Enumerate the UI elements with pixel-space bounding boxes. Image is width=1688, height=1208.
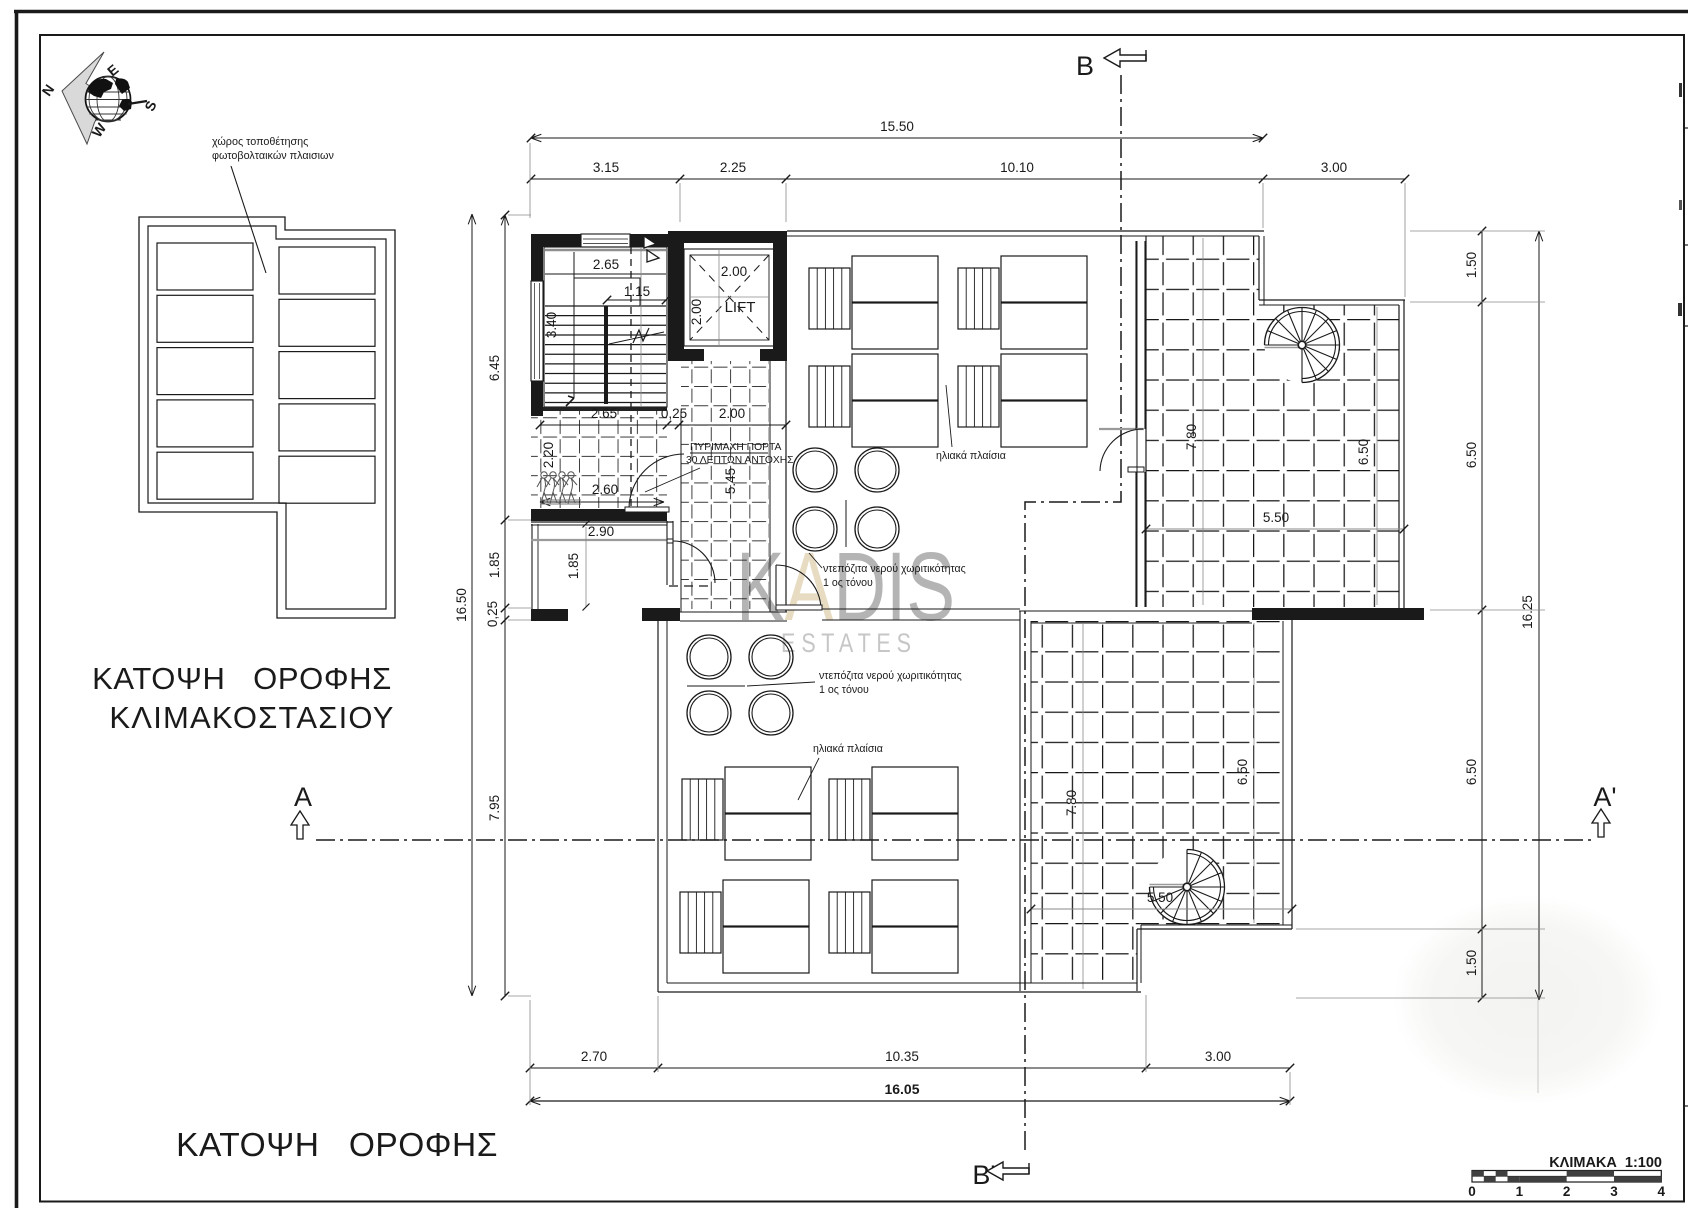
svg-text:ΚΑΤΟΨΗ ΟΡΟΦΗΣ: ΚΑΤΟΨΗ ΟΡΟΦΗΣ [176,1127,498,1164]
svg-text:2.25: 2.25 [720,160,746,175]
svg-text:φωτοβολταικών πλαισιων: φωτοβολταικών πλαισιων [212,150,334,162]
svg-text:A': A' [1593,782,1616,812]
svg-text:6.50: 6.50 [1356,439,1371,465]
svg-text:6.50: 6.50 [1464,759,1479,785]
svg-text:16.05: 16.05 [884,1081,919,1097]
svg-text:ΚΑΤΟΨΗ ΟΡΟΦΗΣ: ΚΑΤΟΨΗ ΟΡΟΦΗΣ [92,661,392,696]
svg-text:ΚΛΙΜΑΚΟΣΤΑΣΙΟΥ: ΚΛΙΜΑΚΟΣΤΑΣΙΟΥ [109,700,394,735]
svg-text:A: A [294,782,312,812]
svg-text:ηλιακά πλαίσια: ηλιακά πλαίσια [936,450,1006,462]
svg-text:16.25: 16.25 [1520,595,1535,629]
svg-text:2: 2 [1563,1184,1571,1199]
svg-text:χώρος τοποθέτησης: χώρος τοποθέτησης [212,136,308,148]
svg-text:5.50: 5.50 [1147,890,1173,905]
svg-text:2.20: 2.20 [541,442,556,468]
svg-text:10.10: 10.10 [1000,160,1034,175]
svg-text:E S T A T E S: E S T A T E S [781,628,911,658]
svg-text:0,25: 0,25 [661,406,687,421]
svg-text:B': B' [972,1160,995,1190]
svg-text:3.40: 3.40 [544,312,559,338]
svg-text:ντεπόζιτα νερού χωριτικότητας: ντεπόζιτα νερού χωριτικότητας [819,670,962,682]
svg-text:1.50: 1.50 [1464,950,1479,976]
svg-text:2.65: 2.65 [593,257,619,272]
svg-text:LIFT: LIFT [725,299,756,316]
svg-text:6.45: 6.45 [487,355,502,381]
svg-text:4: 4 [1658,1184,1666,1199]
svg-text:ντεπόζιτα νερού χωριτικότητας: ντεπόζιτα νερού χωριτικότητας [823,563,966,575]
svg-text:0,25: 0,25 [485,601,500,627]
svg-text:B: B [1076,51,1094,81]
svg-text:1.15: 1.15 [624,284,650,299]
svg-text:3.15: 3.15 [593,160,619,175]
svg-text:7.95: 7.95 [487,795,502,821]
svg-text:ηλιακά πλαίσια: ηλιακά πλαίσια [813,743,883,755]
svg-text:2.65: 2.65 [591,406,617,421]
svg-text:3.00: 3.00 [1205,1049,1231,1064]
svg-text:2.00: 2.00 [719,406,745,421]
svg-text:7.80: 7.80 [1064,790,1079,816]
svg-text:1.50: 1.50 [1464,252,1479,278]
svg-text:ΚΛΙΜΑΚΑ 1:100: ΚΛΙΜΑΚΑ 1:100 [1549,1155,1662,1171]
svg-text:1 ος τόνου: 1 ος τόνου [823,577,873,589]
svg-text:ΠΥΡΙΜΑΧΗ ΠΟΡΤΑ: ΠΥΡΙΜΑΧΗ ΠΟΡΤΑ [690,442,781,453]
svg-text:6.50: 6.50 [1464,442,1479,468]
svg-text:2.60: 2.60 [592,482,618,497]
svg-text:5.45: 5.45 [723,468,738,494]
svg-text:3.00: 3.00 [1321,160,1347,175]
svg-text:0: 0 [1468,1184,1476,1199]
svg-text:3: 3 [1610,1184,1618,1199]
svg-text:5.50: 5.50 [1263,510,1289,525]
svg-text:1.85: 1.85 [487,552,502,578]
svg-text:2.70: 2.70 [581,1049,607,1064]
svg-text:2.00: 2.00 [721,264,747,279]
svg-text:16.50: 16.50 [454,588,469,622]
svg-text:2.90: 2.90 [588,524,614,539]
svg-text:15.50: 15.50 [880,119,914,134]
svg-text:6.50: 6.50 [1235,759,1250,785]
svg-text:30 ΛΕΠΤΩΝ ΑΝΤΟΧΗΣ: 30 ΛΕΠΤΩΝ ΑΝΤΟΧΗΣ [686,455,794,466]
svg-text:1.85: 1.85 [566,553,581,579]
svg-text:7.80: 7.80 [1184,424,1199,450]
svg-text:10.35: 10.35 [885,1049,919,1064]
svg-text:1 ος τόνου: 1 ος τόνου [819,684,869,696]
svg-text:1: 1 [1516,1184,1524,1199]
svg-text:2.00: 2.00 [689,299,704,325]
